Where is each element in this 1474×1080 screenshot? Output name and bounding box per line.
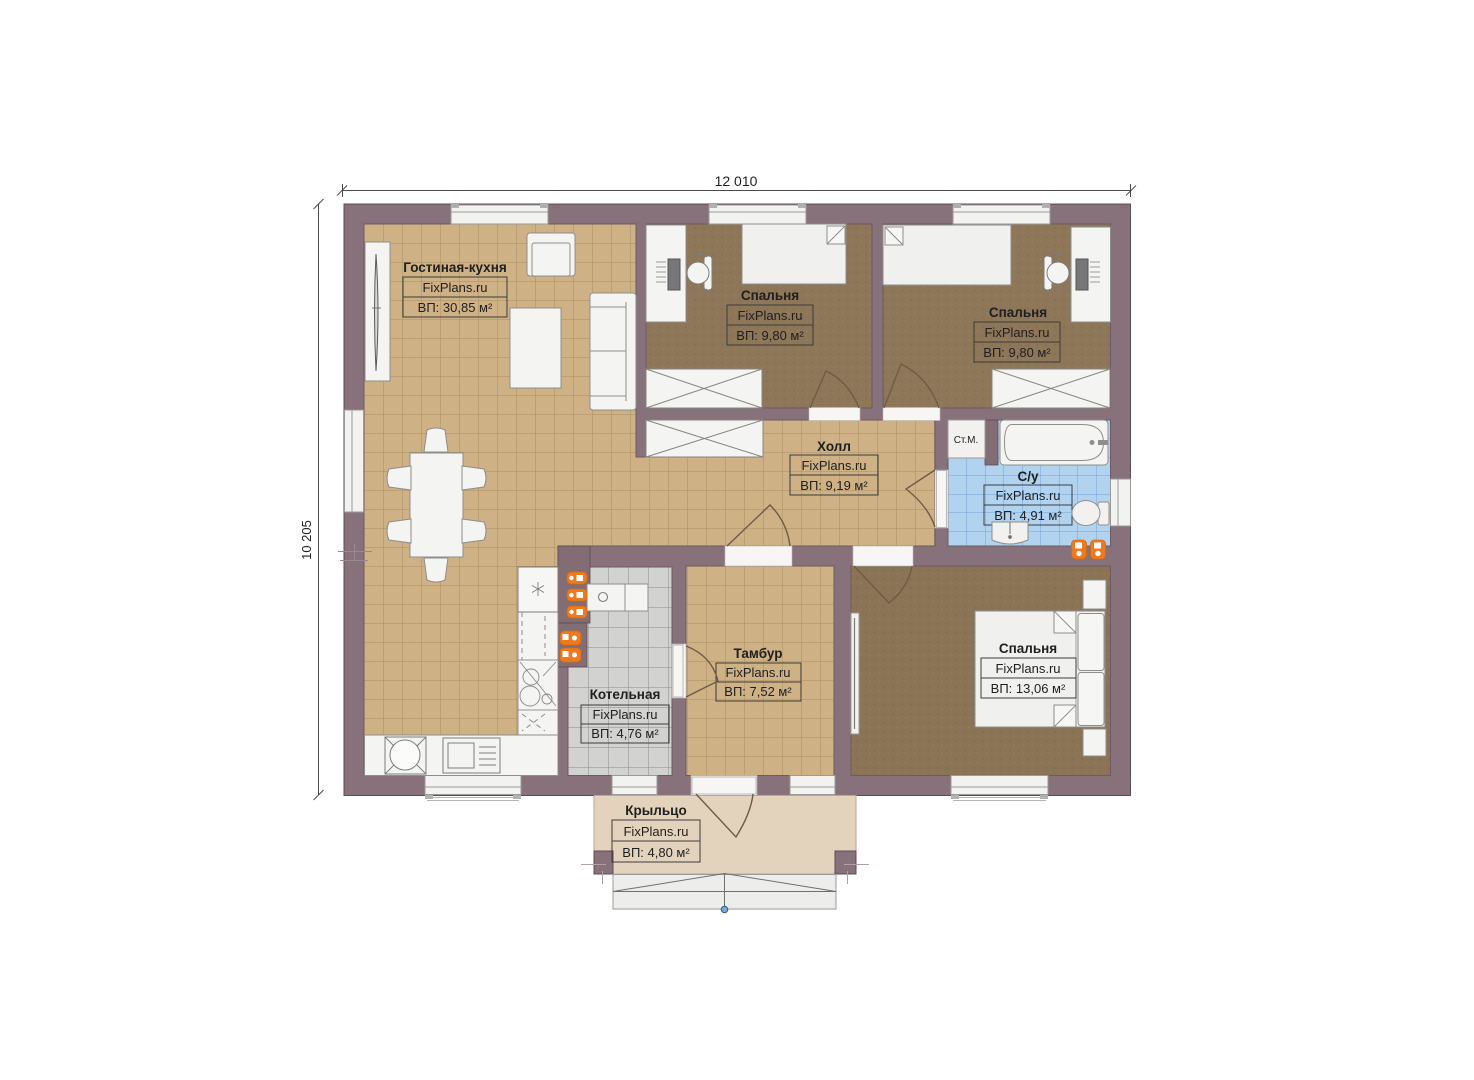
svg-text:ВП: 4,80 м²: ВП: 4,80 м² (622, 845, 690, 860)
svg-text:FixPlans.ru: FixPlans.ru (995, 488, 1060, 503)
svg-text:Ст.М.: Ст.М. (954, 435, 979, 446)
svg-text:ВП: 4,91 м²: ВП: 4,91 м² (994, 508, 1062, 523)
svg-text:FixPlans.ru: FixPlans.ru (737, 308, 802, 323)
svg-text:Спальня: Спальня (741, 288, 799, 303)
svg-text:Спальня: Спальня (989, 305, 1047, 320)
svg-text:Холл: Холл (817, 439, 851, 454)
svg-text:ВП: 13,06 м²: ВП: 13,06 м² (991, 681, 1066, 696)
svg-text:ВП: 4,76 м²: ВП: 4,76 м² (591, 726, 659, 741)
svg-text:FixPlans.ru: FixPlans.ru (592, 707, 657, 722)
svg-text:FixPlans.ru: FixPlans.ru (995, 661, 1060, 676)
svg-text:ВП: 9,80 м²: ВП: 9,80 м² (983, 345, 1051, 360)
svg-text:10 205: 10 205 (299, 520, 314, 560)
svg-text:FixPlans.ru: FixPlans.ru (422, 280, 487, 295)
svg-text:ВП: 9,80 м²: ВП: 9,80 м² (736, 328, 804, 343)
svg-text:12 010: 12 010 (715, 173, 758, 189)
svg-text:FixPlans.ru: FixPlans.ru (984, 325, 1049, 340)
svg-text:FixPlans.ru: FixPlans.ru (725, 665, 790, 680)
svg-text:ВП: 9,19 м²: ВП: 9,19 м² (800, 478, 868, 493)
svg-text:Котельная: Котельная (590, 687, 661, 702)
svg-text:ВП: 7,52 м²: ВП: 7,52 м² (724, 684, 792, 699)
svg-text:Тамбур: Тамбур (734, 646, 783, 661)
svg-text:FixPlans.ru: FixPlans.ru (801, 458, 866, 473)
svg-text:С/у: С/у (1017, 469, 1039, 484)
svg-text:FixPlans.ru: FixPlans.ru (623, 824, 688, 839)
svg-text:Крыльцо: Крыльцо (625, 803, 686, 818)
svg-text:Гостиная-кухня: Гостиная-кухня (403, 260, 506, 275)
svg-text:Спальня: Спальня (999, 641, 1057, 656)
svg-text:ВП: 30,85 м²: ВП: 30,85 м² (418, 300, 493, 315)
